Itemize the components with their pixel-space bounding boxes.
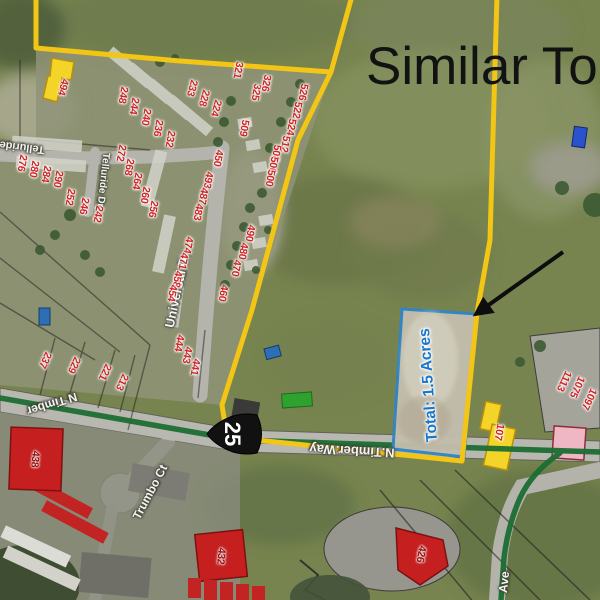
page-title: Similar To: [366, 36, 598, 97]
building-432: [195, 530, 248, 582]
aerial-map: 25 TellurideTelluride DrUniversal DrN Ti…: [0, 0, 600, 600]
blue-building: [572, 126, 588, 148]
route-25-number: 25: [220, 422, 245, 446]
green-shed: [282, 392, 313, 408]
building-438: [9, 427, 63, 491]
blue-shed: [39, 308, 50, 325]
